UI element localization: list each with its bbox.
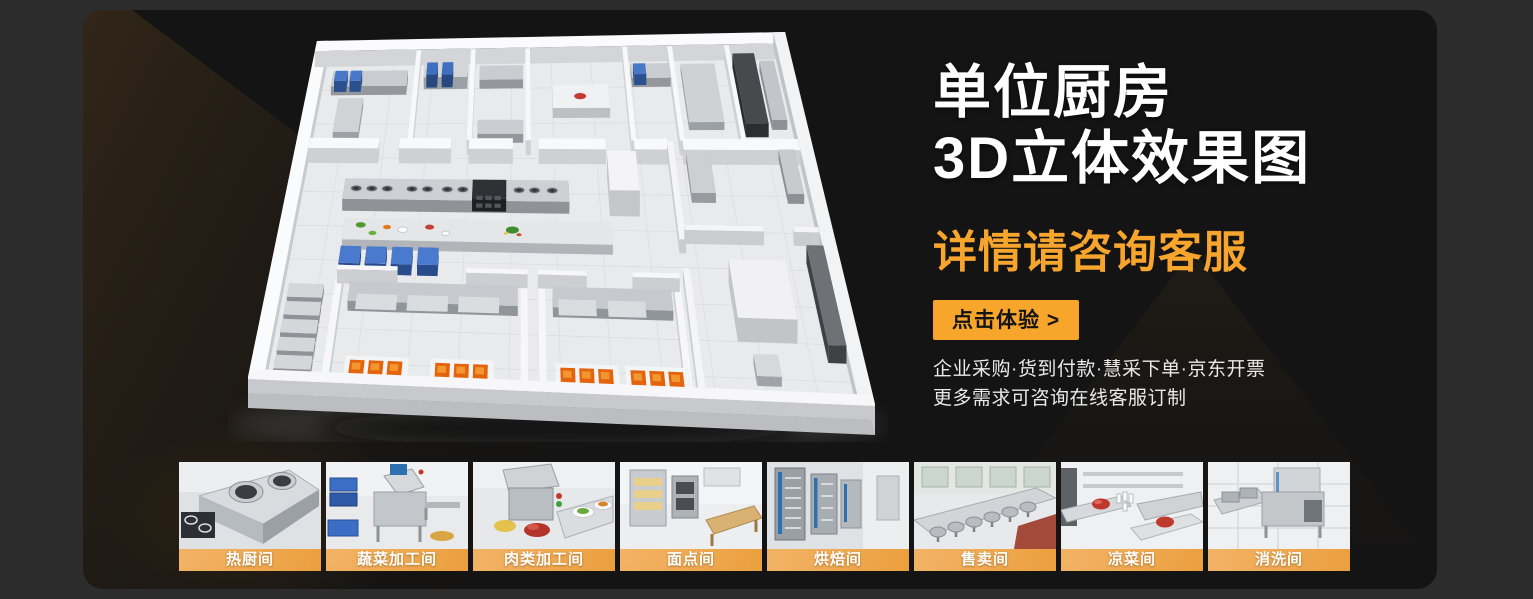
banner-root: { "panel": { "headline_line1": "单位厨房", "… <box>0 0 1533 599</box>
thumbnail-hot-kitchen[interactable]: 热厨间 <box>179 462 321 571</box>
sales-room-image <box>914 462 1056 549</box>
kitchen-3d-floorplan <box>228 28 888 442</box>
benefits-text: 企业采购·货到付款·慧采下单·京东开票 更多需求可咨询在线客服订制 <box>933 355 1413 413</box>
benefits-line2: 更多需求可咨询在线客服订制 <box>933 384 1413 413</box>
headline-line1: 单位厨房 <box>933 60 1413 126</box>
thumbnail-pastry-room[interactable]: 面点间 <box>620 462 762 571</box>
thumbnail-cold-dish-room[interactable]: 凉菜间 <box>1061 462 1203 571</box>
thumbnail-label: 面点间 <box>620 549 762 571</box>
cold-dish-room-image <box>1061 462 1203 549</box>
thumbnail-label: 售卖间 <box>914 549 1056 571</box>
thumbnail-meat-processing[interactable]: 肉类加工间 <box>473 462 615 571</box>
thumbnail-label: 肉类加工间 <box>473 549 615 571</box>
thumbnail-label: 蔬菜加工间 <box>326 549 468 571</box>
vegetable-processing-image <box>326 462 468 549</box>
room-thumbnail-strip: 热厨间 蔬菜加工间 <box>179 462 1379 571</box>
promo-panel: 单位厨房 3D立体效果图 详情请咨询客服 点击体验 > 企业采购·货到付款·慧采… <box>83 10 1437 589</box>
washing-room-image <box>1208 462 1350 549</box>
thumbnail-baking-room[interactable]: 烘焙间 <box>767 462 909 571</box>
benefits-line1: 企业采购·货到付款·慧采下单·京东开票 <box>933 355 1413 384</box>
thumbnail-label: 烘焙间 <box>767 549 909 571</box>
subtitle-consult: 详情请咨询客服 <box>933 228 1413 278</box>
thumbnail-label: 热厨间 <box>179 549 321 571</box>
thumbnail-label: 凉菜间 <box>1061 549 1203 571</box>
thumbnail-washing-room[interactable]: 消洗间 <box>1208 462 1350 571</box>
pastry-room-image <box>620 462 762 549</box>
headline-line2: 3D立体效果图 <box>933 126 1413 192</box>
hot-kitchen-image <box>179 462 321 549</box>
meat-processing-image <box>473 462 615 549</box>
thumbnail-sales-room[interactable]: 售卖间 <box>914 462 1056 571</box>
baking-room-image <box>767 462 909 549</box>
thumbnail-vegetable-processing[interactable]: 蔬菜加工间 <box>326 462 468 571</box>
thumbnail-label: 消洗间 <box>1208 549 1350 571</box>
cta-button[interactable]: 点击体验 > <box>933 300 1079 340</box>
promo-text-column: 单位厨房 3D立体效果图 详情请咨询客服 点击体验 > 企业采购·货到付款·慧采… <box>933 60 1413 413</box>
